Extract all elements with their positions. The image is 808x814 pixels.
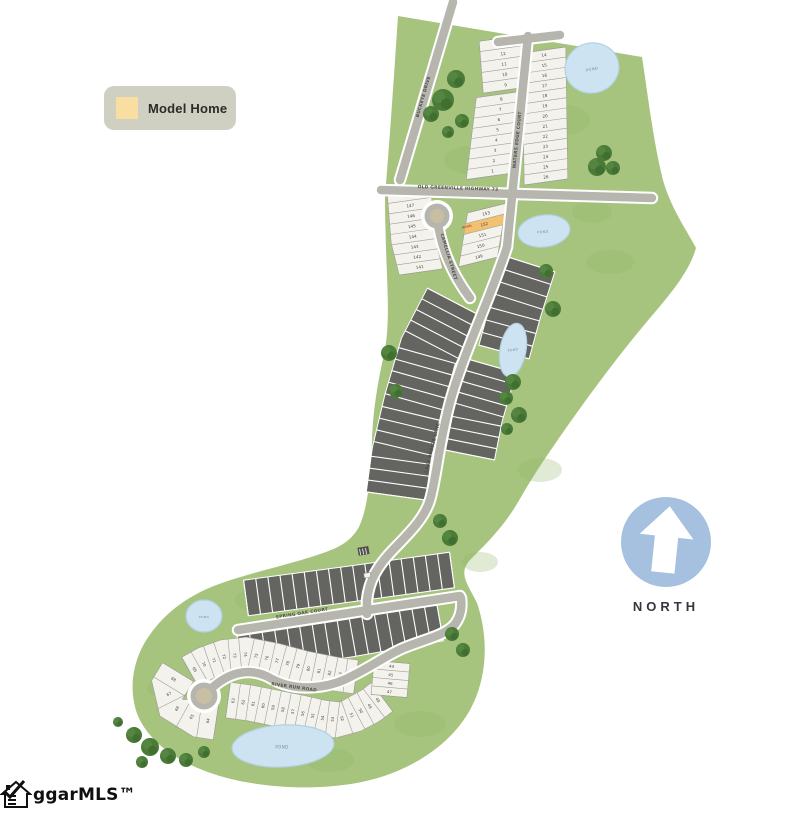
tree-shade [511, 381, 519, 389]
tree-shade [395, 390, 402, 397]
lot-47-label: 47 [387, 689, 393, 694]
tree-shade [602, 152, 610, 160]
tree-shade [545, 270, 552, 277]
tree-shade [461, 120, 468, 127]
tree-shade [505, 397, 512, 404]
tree-shade [448, 537, 456, 545]
pond-label: POND [275, 745, 288, 750]
grass-patch [518, 458, 562, 482]
north-circle [621, 497, 711, 587]
tree-shade [141, 761, 147, 767]
tree-shade [203, 751, 209, 757]
culdesac-island [430, 209, 444, 223]
lot-45-label: 45 [388, 672, 394, 677]
tree-shade [595, 166, 604, 175]
house-check-icon [0, 779, 32, 811]
tree-shade [387, 352, 395, 360]
culdesac-island [196, 688, 212, 704]
lot-46-label: 46 [387, 681, 393, 686]
tree-shade [551, 308, 559, 316]
grass-patch [394, 711, 446, 737]
legend: Model Home [104, 86, 236, 130]
sign-marker [364, 572, 371, 578]
grass-patch [586, 250, 634, 274]
tree-shade [132, 734, 140, 742]
lot-44-label: 44 [389, 664, 395, 669]
north-indicator: NORTH [618, 497, 714, 614]
tree-shade [166, 755, 174, 763]
tree-shade [517, 414, 525, 422]
north-arrow-icon [621, 497, 711, 587]
tree-shade [447, 131, 453, 137]
tree-shade [148, 746, 157, 755]
site-plan-page: 1312111098765432114151617181920212223242… [0, 0, 808, 814]
pond-label: POND [199, 615, 210, 619]
tree-shade [451, 633, 458, 640]
mls-logo: ggarMLS™ [0, 779, 136, 811]
tree-shade [454, 78, 463, 87]
grass-patch [572, 201, 612, 223]
model-home-swatch [116, 97, 138, 119]
tree-shade [429, 113, 437, 121]
legend-model-home-label: Model Home [148, 101, 227, 116]
tree-shade [117, 721, 122, 726]
north-label: NORTH [618, 599, 714, 614]
tree-shade [462, 649, 469, 656]
tree-shade [441, 98, 452, 109]
tree-shade [439, 520, 446, 527]
tree-shade [185, 759, 192, 766]
tree-shade [506, 428, 512, 434]
mls-logo-text: ggarMLS™ [33, 785, 136, 805]
tree-shade [612, 167, 619, 174]
grass-patch [462, 552, 498, 572]
